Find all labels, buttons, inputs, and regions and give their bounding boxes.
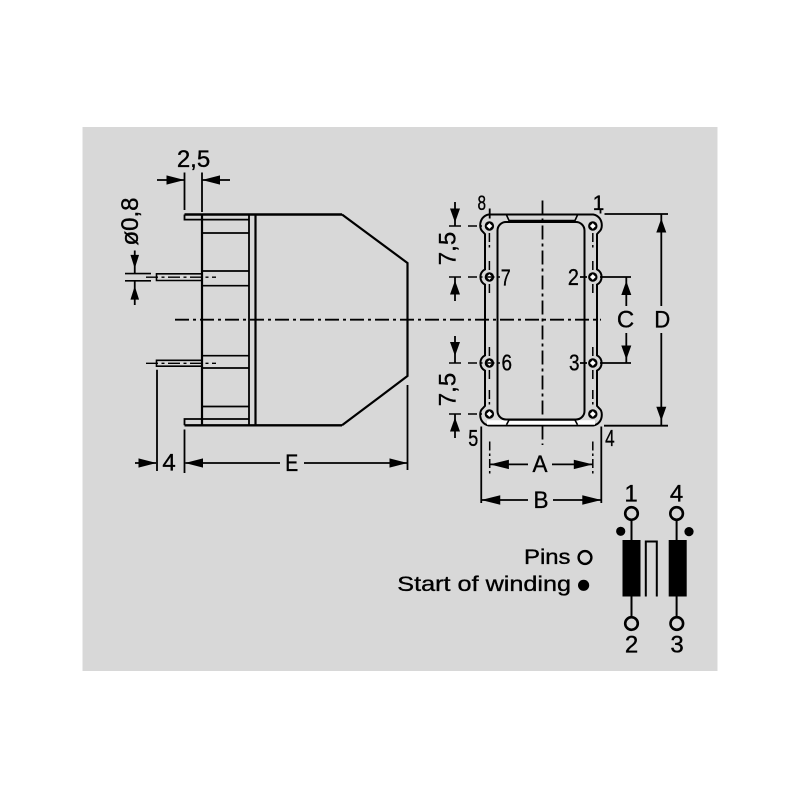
- svg-text:7,5: 7,5: [435, 373, 462, 406]
- svg-text:4: 4: [670, 481, 683, 508]
- svg-text:1: 1: [593, 192, 605, 215]
- svg-text:6: 6: [502, 350, 513, 376]
- svg-text:C: C: [617, 307, 634, 334]
- svg-text:E: E: [285, 450, 298, 477]
- svg-text:4: 4: [162, 450, 175, 477]
- svg-text:A: A: [533, 451, 548, 478]
- svg-text:7: 7: [501, 265, 511, 291]
- svg-text:B: B: [534, 487, 549, 514]
- svg-text:Pins: Pins: [524, 545, 571, 569]
- svg-text:Start of winding: Start of winding: [397, 572, 571, 596]
- svg-text:2: 2: [568, 264, 579, 290]
- svg-text:1: 1: [624, 481, 637, 508]
- svg-text:4: 4: [605, 425, 615, 451]
- svg-text:2,5: 2,5: [177, 146, 210, 173]
- svg-text:3: 3: [670, 632, 683, 659]
- svg-text:2: 2: [625, 632, 638, 659]
- svg-text:8: 8: [478, 192, 487, 215]
- svg-text:D: D: [654, 307, 670, 334]
- svg-text:ø0,8: ø0,8: [117, 197, 144, 245]
- svg-text:3: 3: [569, 350, 580, 376]
- svg-text:7,5: 7,5: [435, 232, 462, 265]
- svg-text:5: 5: [468, 425, 478, 451]
